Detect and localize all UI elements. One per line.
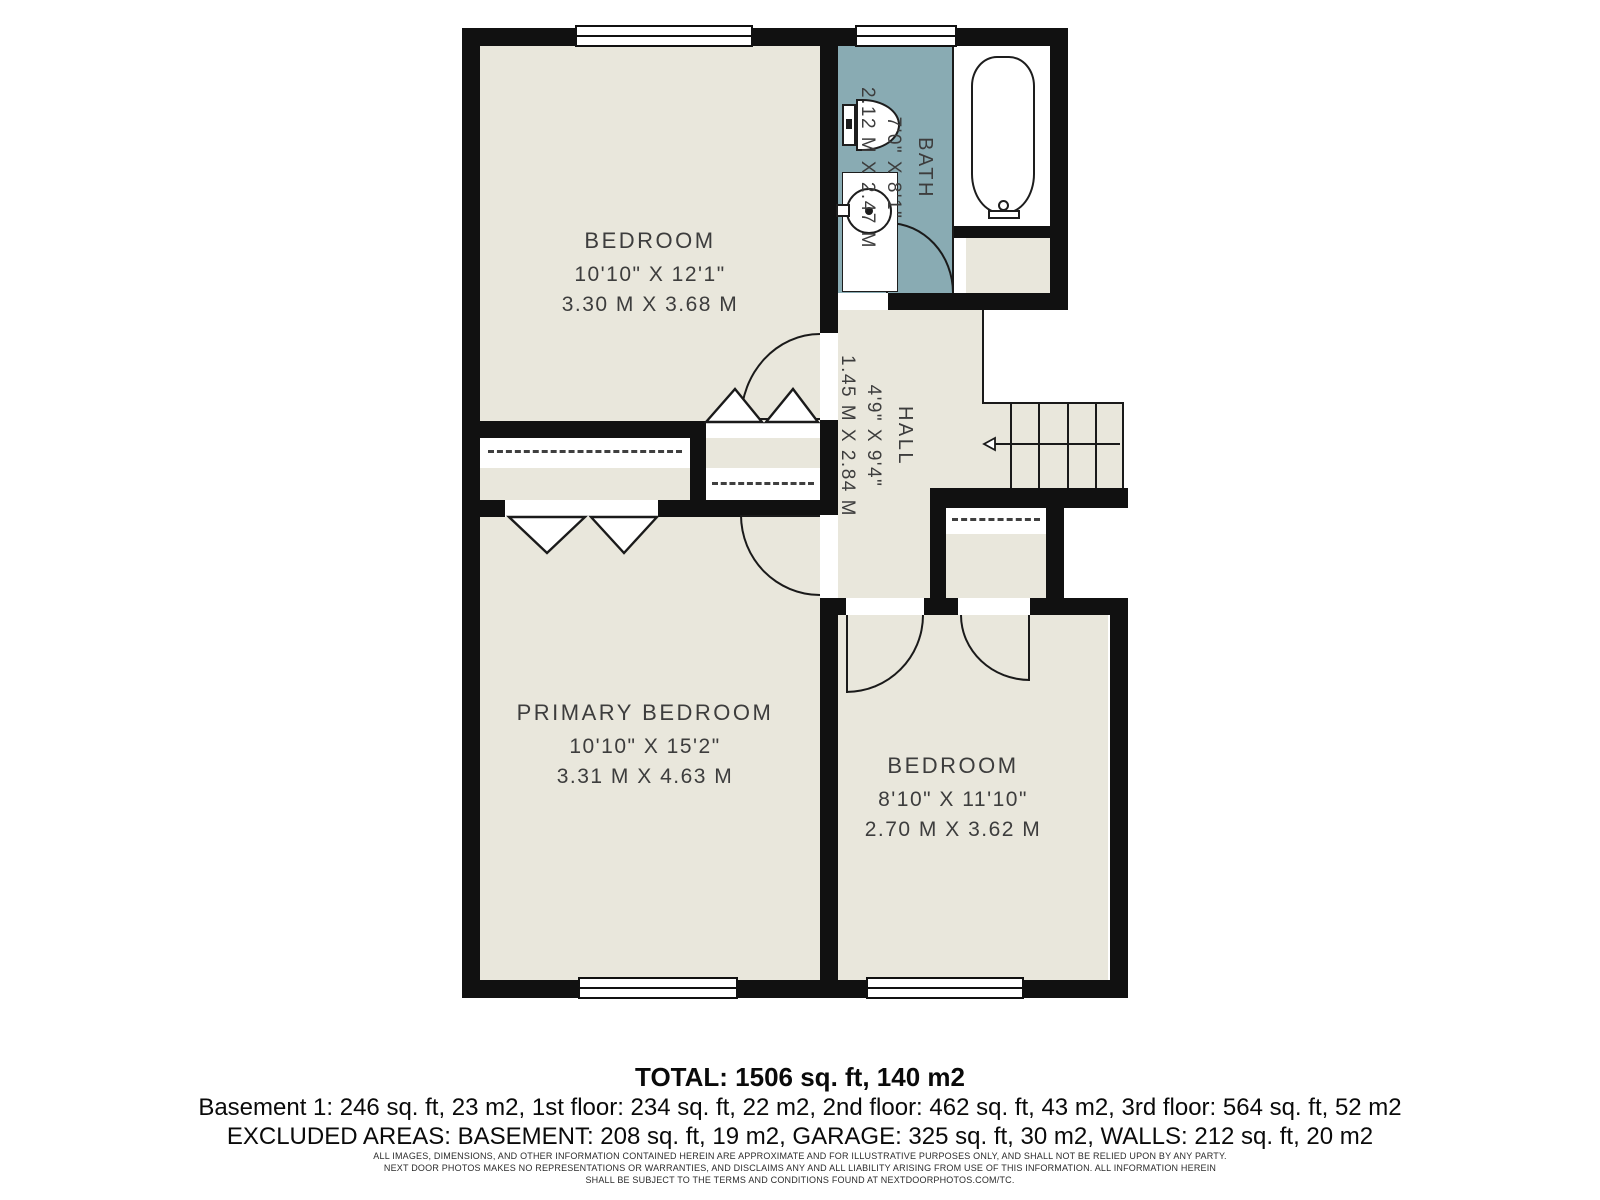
window-bedroom-top <box>575 25 753 47</box>
room-dims-metric: 3.31 M X 4.63 M <box>465 765 825 789</box>
wall-bedroom-top-bottom <box>462 421 690 438</box>
room-label-bedroom-right: BEDROOM 8'10" X 11'10" 2.70 M X 3.62 M <box>798 753 1108 842</box>
room-dims-metric: 1.45 M X 2.84 M <box>836 331 858 541</box>
room-label-bath: BATH 7'0" X 8'1" 2.12 M X 2.47 M <box>856 80 936 256</box>
wall-bottom <box>462 980 1128 998</box>
room-label-bedroom-top: BEDROOM 10'10" X 12'1" 3.30 M X 3.68 M <box>488 228 812 317</box>
bifold-door-icon-top-closet <box>702 385 822 425</box>
bifold-door-icon-primary-closet <box>505 515 661 557</box>
room-label-primary-bedroom: PRIMARY BEDROOM 10'10" X 15'2" 3.31 M X … <box>465 700 825 789</box>
room-dims-metric: 2.12 M X 2.47 M <box>856 80 878 256</box>
floor-plan: BEDROOM 10'10" X 12'1" 3.30 M X 3.68 M B… <box>0 0 1600 1200</box>
hall-closet-floor <box>946 534 1046 598</box>
bathtub-faucet-knob-icon <box>998 200 1009 211</box>
total-area-text: TOTAL: 1506 sq. ft, 140 m2 <box>0 1062 1600 1093</box>
door-leaf-bedroom-right-closet <box>1028 615 1030 681</box>
disclaimer-line-2: NEXT DOOR PHOTOS MAKES NO REPRESENTATION… <box>0 1162 1600 1174</box>
disclaimer-line-1: ALL IMAGES, DIMENSIONS, AND OTHER INFORM… <box>0 1150 1600 1162</box>
staircase <box>982 402 1124 488</box>
wall-bedroom-right-right <box>1110 615 1128 980</box>
stair-tread-line <box>1095 402 1097 488</box>
linen-closet-floor <box>966 238 1050 293</box>
room-label-hall: HALL 4'9" X 9'4" 1.45 M X 2.84 M <box>836 331 916 541</box>
window-bedroom-right <box>866 977 1024 999</box>
closet-rod-hall-closet <box>952 518 1040 521</box>
wall-closet-divider <box>690 421 706 517</box>
bedroom-top-closet-floor <box>706 438 820 468</box>
wall-bedroom-right-top-b <box>924 598 958 615</box>
wall-below-stairs <box>930 488 1128 508</box>
excluded-areas-text: EXCLUDED AREAS: BASEMENT: 208 sq. ft, 19… <box>0 1123 1600 1151</box>
hall-closet-shelf <box>946 508 1046 534</box>
room-name: HALL <box>893 331 916 541</box>
wall-spine-a <box>820 46 838 333</box>
primary-closet-floor <box>480 468 690 500</box>
wall-bath-bottom <box>888 293 1068 310</box>
room-dims-imperial: 4'9" X 9'4" <box>862 331 884 541</box>
bath-tub-divider-line <box>952 46 954 293</box>
sink-faucet-icon <box>836 204 850 217</box>
room-name: BEDROOM <box>488 228 812 254</box>
room-name: BATH <box>913 80 936 256</box>
wall-hall-closet-left <box>930 508 946 598</box>
bathtub-icon <box>971 56 1035 214</box>
stair-tread-line <box>1038 402 1040 488</box>
room-dims-metric: 2.70 M X 3.62 M <box>798 818 1108 842</box>
wall-bedroom-right-top-a <box>838 598 846 615</box>
door-leaf-bedroom-right <box>846 615 848 693</box>
wall-top <box>462 28 1068 46</box>
room-dims-imperial: 7'0" X 8'1" <box>882 80 904 256</box>
toilet-tank-button-icon <box>846 119 852 129</box>
room-name: PRIMARY BEDROOM <box>465 700 825 726</box>
wall-primary-closet-b <box>658 500 690 517</box>
room-dims-imperial: 8'10" X 11'10" <box>798 788 1108 812</box>
wall-bedroom-right-top-c <box>1030 598 1128 615</box>
wall-primary-closet-a <box>462 500 505 517</box>
floor-areas-text: Basement 1: 246 sq. ft, 23 m2, 1st floor… <box>0 1094 1600 1122</box>
stair-tread-line <box>1010 402 1012 488</box>
stair-tread-line <box>1067 402 1069 488</box>
closet-rod-bedroom-top <box>712 482 814 485</box>
stair-direction-arrow-icon <box>982 436 998 452</box>
room-dims-imperial: 10'10" X 15'2" <box>465 735 825 759</box>
bathtub-faucet-icon <box>988 210 1020 219</box>
disclaimer-line-3: SHALL BE SUBJECT TO THE TERMS AND CONDIT… <box>0 1174 1600 1186</box>
window-primary-bedroom <box>578 977 738 999</box>
stair-direction-line <box>992 443 1120 445</box>
primary-closet-shelf <box>480 438 690 468</box>
door-leaf-primary-bedroom <box>742 515 820 517</box>
wall-hall-closet-right <box>1046 508 1064 598</box>
room-name: BEDROOM <box>798 753 1108 779</box>
closet-rod-primary <box>488 450 682 453</box>
stairwell-outline-line <box>982 310 984 404</box>
window-bath <box>855 25 957 47</box>
wall-under-tub <box>954 226 1068 238</box>
room-dims-metric: 3.30 M X 3.68 M <box>488 293 812 317</box>
wall-right-top <box>1050 28 1068 310</box>
room-dims-imperial: 10'10" X 12'1" <box>488 263 812 287</box>
